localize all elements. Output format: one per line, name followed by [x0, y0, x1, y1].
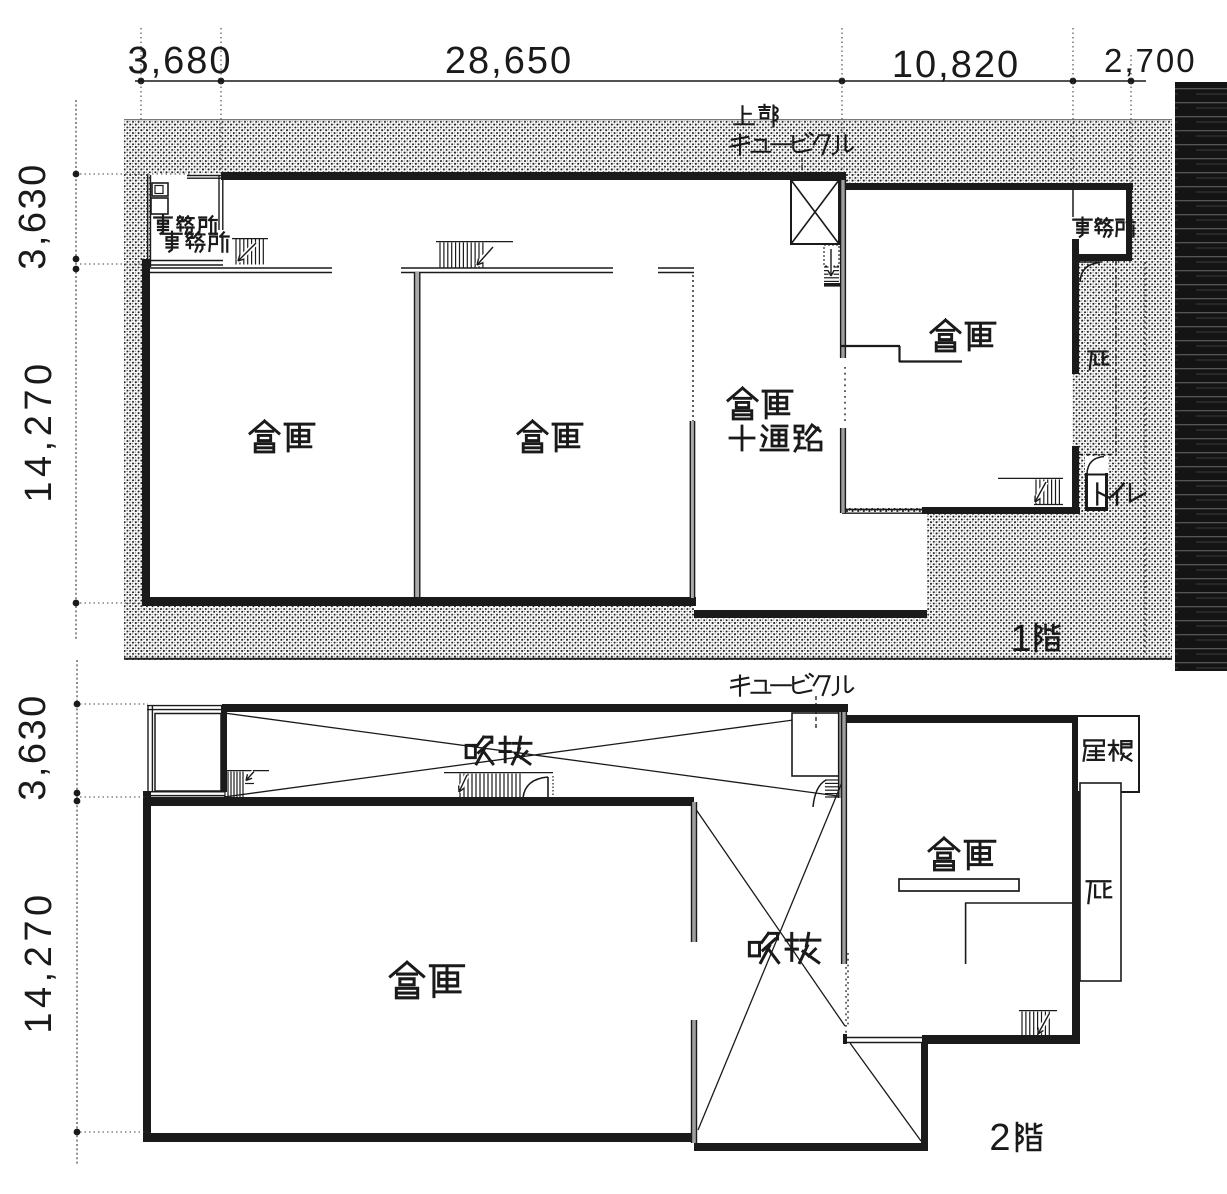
svg-text:3,630: 3,630 [12, 162, 54, 270]
svg-text:14,270: 14,270 [18, 890, 60, 1033]
svg-text:3,630: 3,630 [12, 693, 54, 801]
svg-text:2: 2 [989, 1117, 1010, 1159]
svg-text:2,700: 2,700 [1104, 42, 1197, 79]
svg-text:3,680: 3,680 [127, 40, 232, 82]
svg-text:1: 1 [1010, 618, 1031, 660]
svg-text:28,650: 28,650 [445, 40, 573, 82]
svg-text:14,270: 14,270 [18, 359, 60, 502]
svg-text:10,820: 10,820 [892, 44, 1020, 86]
